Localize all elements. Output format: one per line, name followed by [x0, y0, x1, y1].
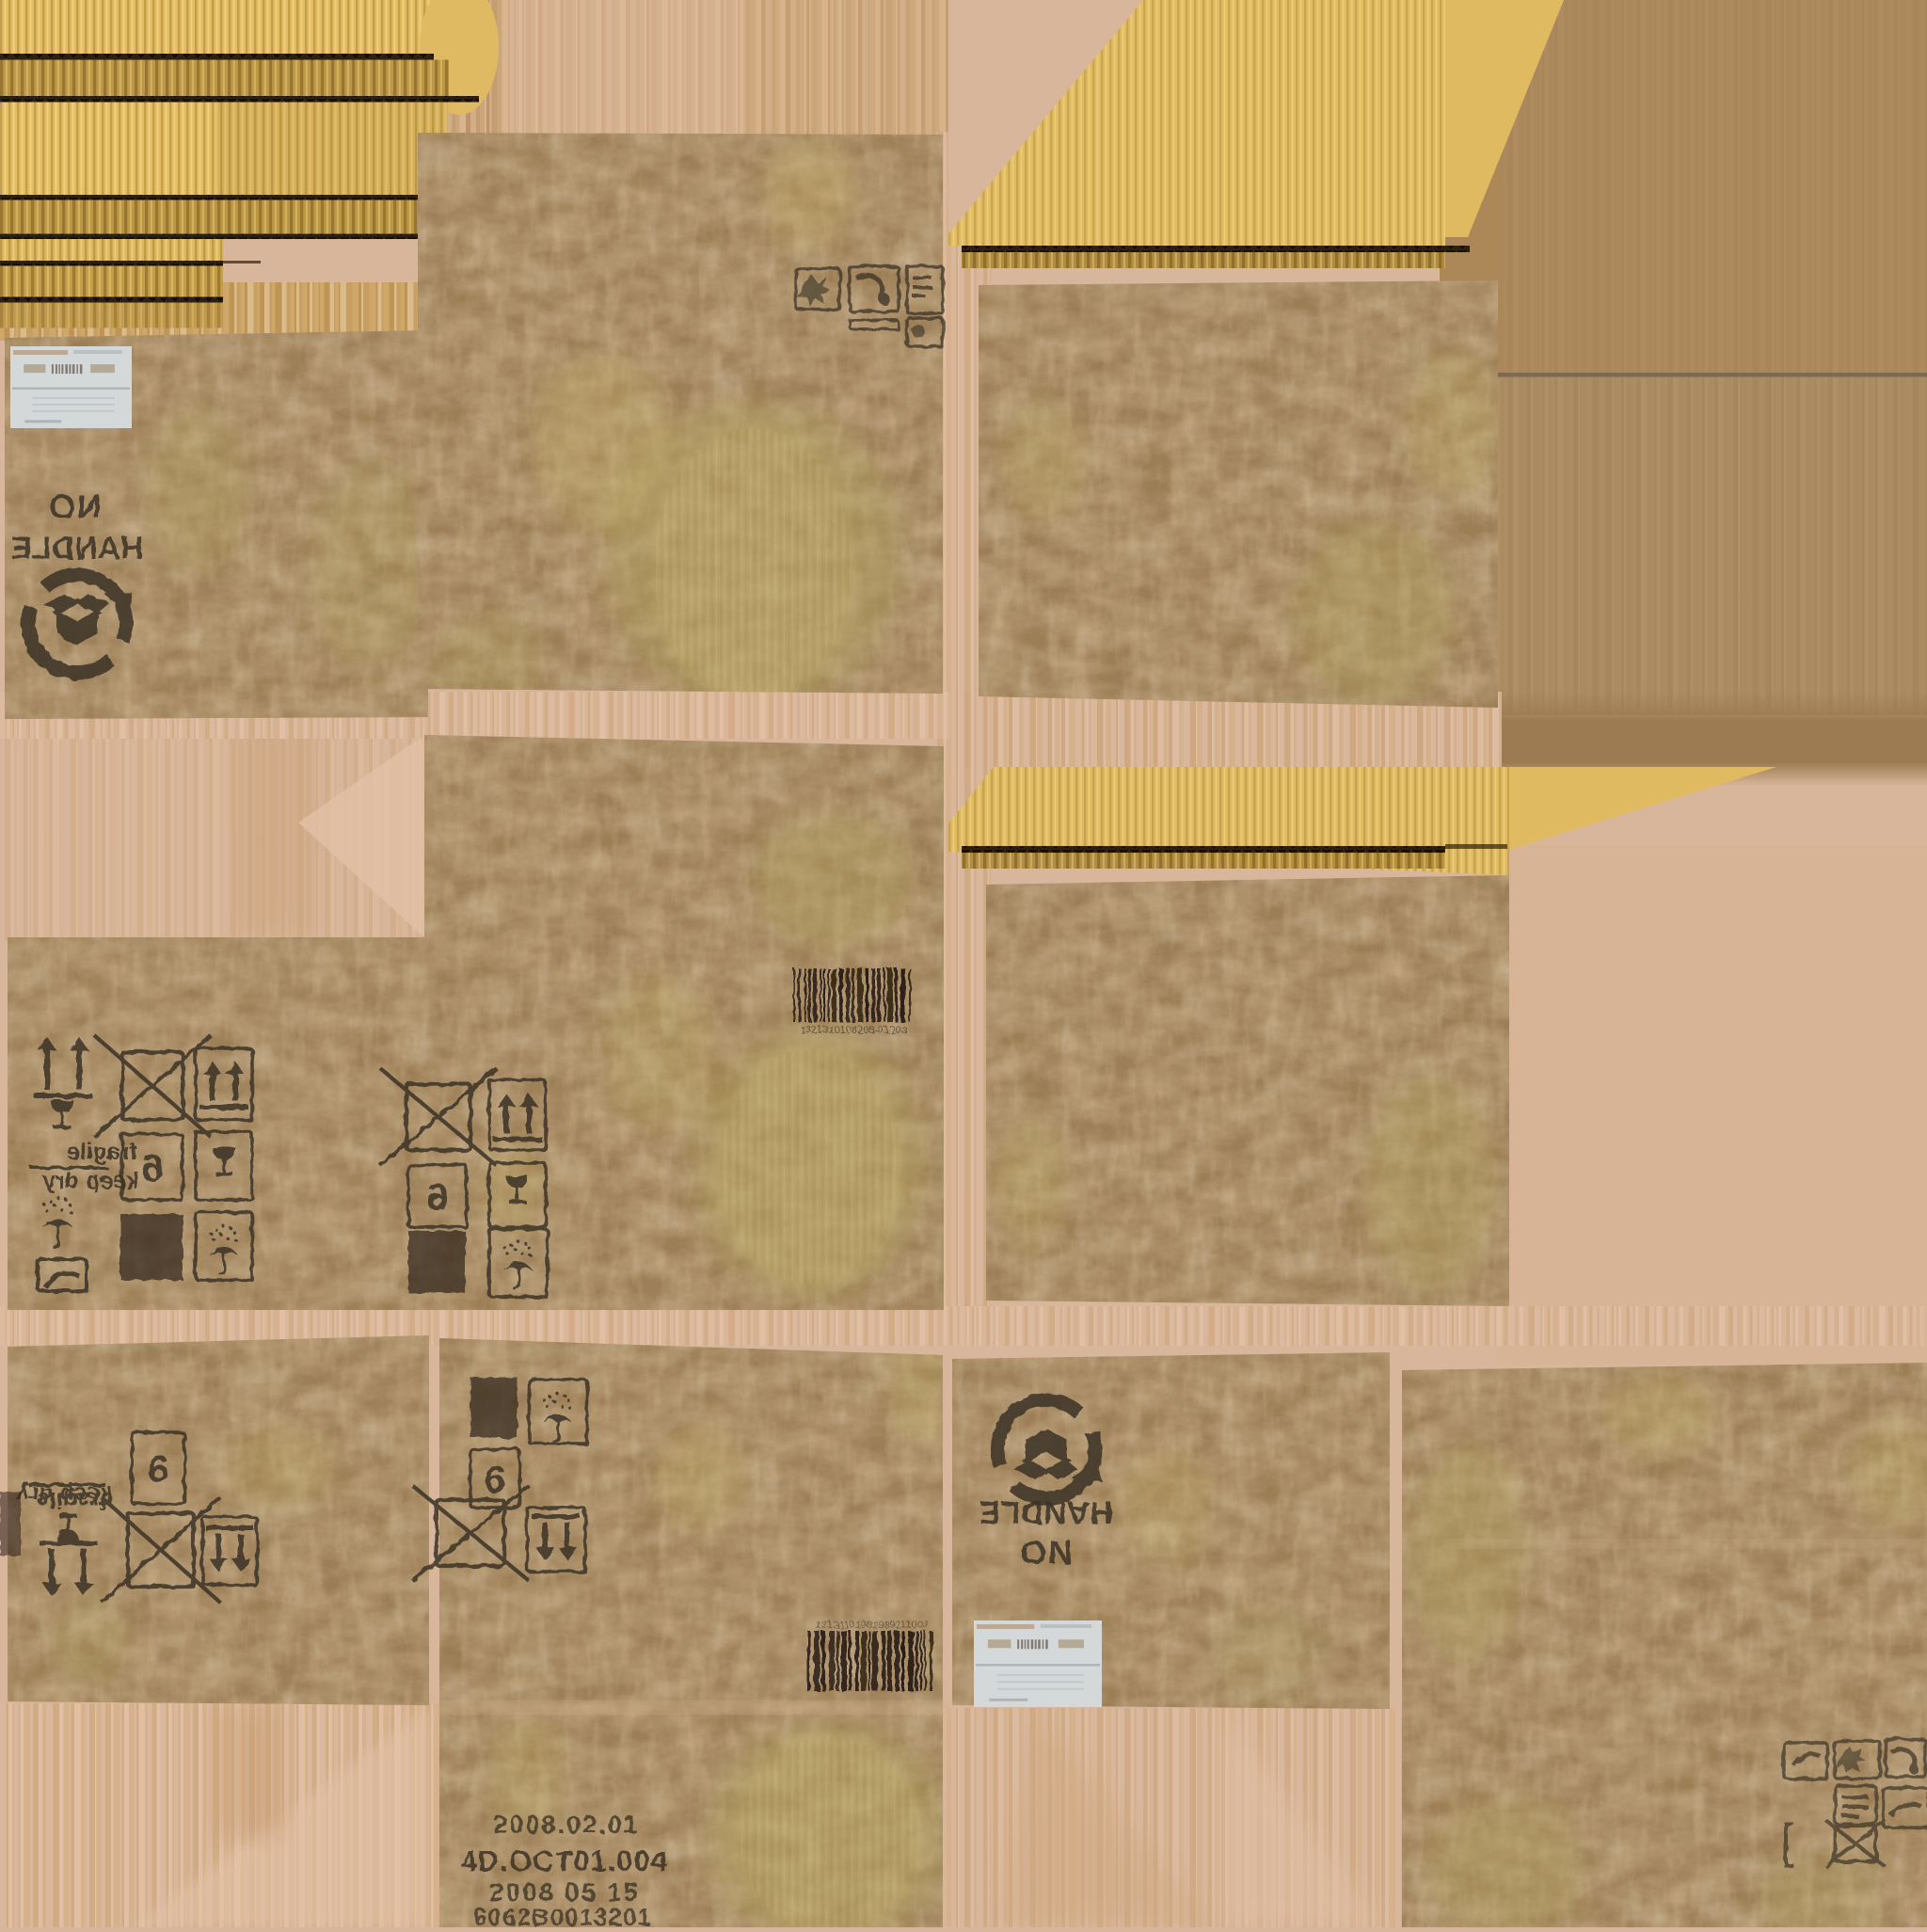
svg-text:4D.OCT01.004: 4D.OCT01.004: [461, 1844, 669, 1877]
svg-text:HANDLE: HANDLE: [10, 531, 144, 567]
svg-text:fragile: fragile: [37, 1487, 107, 1513]
svg-text:6: 6: [484, 1457, 505, 1501]
svg-text:1321310108208-01203: 1321310108208-01203: [800, 1025, 907, 1036]
svg-text:6062B0013201: 6062B0013201: [473, 1903, 652, 1927]
svg-text:keep dry: keep dry: [42, 1168, 139, 1194]
svg-text:2008.02.01: 2008.02.01: [493, 1811, 639, 1839]
svg-text:6: 6: [147, 1446, 168, 1491]
svg-text:6: 6: [141, 1145, 163, 1190]
svg-text:12131101082989211003: 12131101082989211003: [816, 1620, 930, 1631]
svg-text:NO: NO: [1018, 1533, 1073, 1572]
svg-text:NO: NO: [47, 487, 102, 526]
svg-text:fragile: fragile: [67, 1139, 137, 1165]
svg-text:HANDLE: HANDLE: [979, 1494, 1113, 1530]
svg-text:6: 6: [426, 1174, 448, 1219]
